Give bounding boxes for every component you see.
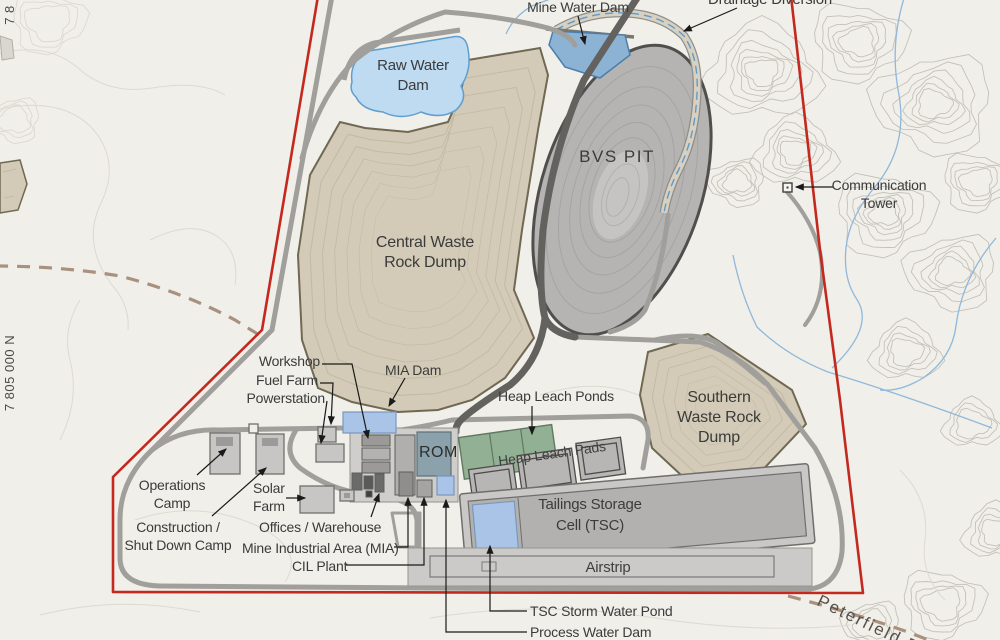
label-workshop: Workshop [220,352,320,370]
mia-dam [343,412,396,433]
label-mine-industrial-area: Mine Industrial Area (MIA) [242,539,399,557]
mine-site-map: Mine Water Dam Drainage Diversion Raw Wa… [0,0,1000,640]
label-bvs-pit: BVS PIT [579,148,655,166]
label-coordinate-north-top: 7 8 [1,0,19,35]
label-raw-water-dam: Raw Water Dam [377,56,449,96]
label-solar-farm: Solar Farm [253,479,285,515]
label-offices-warehouse: Offices / Warehouse [259,518,381,536]
solar-farm-area [300,486,334,513]
fuel-farm-building [318,427,336,442]
label-airstrip: Airstrip [585,559,630,577]
label-drainage-diversion: Drainage Diversion [708,0,832,9]
label-southern-waste-rock-dump: Southern Waste Rock Dump [677,388,761,448]
label-communication-tower: Communication Tower [832,176,927,212]
label-fuel-farm: Fuel Farm [220,371,318,389]
label-construction-camp: Construction / Shut Down Camp [125,518,232,554]
label-mia-dam: MIA Dam [385,361,441,379]
stockpile-west [0,160,27,213]
label-operations-camp: Operations Camp [139,476,205,512]
label-coordinate-north: 7 805 000 N [1,333,19,413]
label-heap-leach-ponds: Heap Leach Ponds [498,387,614,405]
label-process-water-dam: Process Water Dam [530,623,651,640]
powerstation-building [316,444,344,462]
communication-tower-icon [783,183,792,192]
label-rom: ROM [419,444,458,462]
label-central-waste-rock-dump: Central Waste Rock Dump [376,233,474,273]
label-tailings-storage-cell: Tailings Storage Cell (TSC) [538,494,642,536]
label-cil-plant: CIL Plant [292,557,347,575]
label-powerstation: Powerstation [221,389,325,407]
stockpile-small-hatched [0,36,14,60]
label-mine-water-dam: Mine Water Dam [527,0,629,16]
process-water-dam [437,476,454,495]
label-tsc-storm-water-pond: TSC Storm Water Pond [530,602,673,620]
